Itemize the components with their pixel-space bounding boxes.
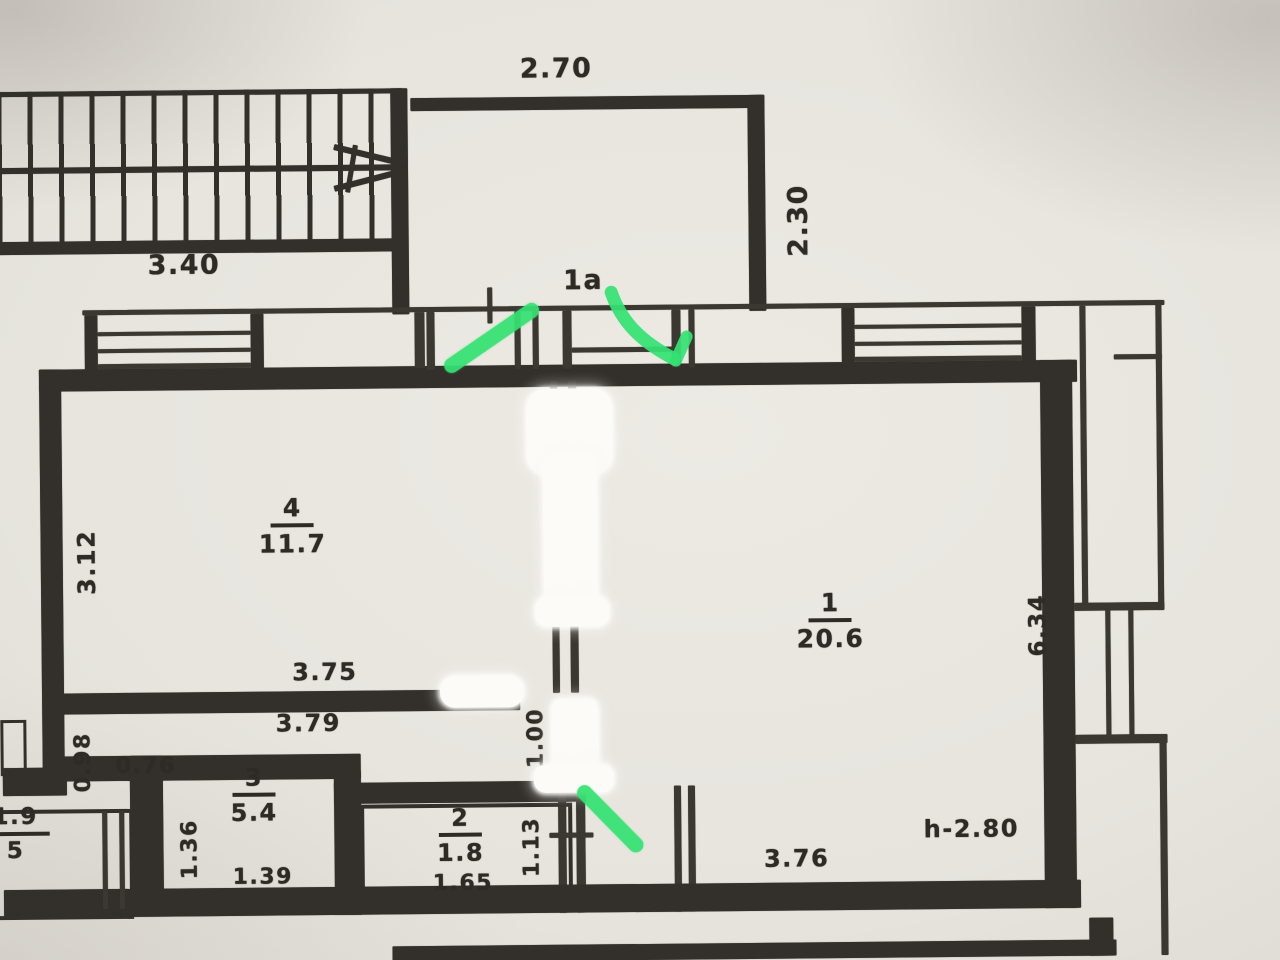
dim-balcony-top: 2.70 <box>520 55 593 83</box>
door-tick <box>487 287 492 323</box>
window-left-pane-line <box>98 348 251 353</box>
dim-room4-left: 3.12 <box>74 530 99 595</box>
porch-right-wall <box>747 95 766 311</box>
stairs-right-wall <box>390 88 409 314</box>
green-arrow-into-hall <box>593 279 714 380</box>
left-niche <box>0 720 27 776</box>
dim-corridor: 3.79 <box>276 711 341 736</box>
bay-window-top <box>1074 602 1164 611</box>
room2-label: 2 1.8 <box>437 806 485 865</box>
room2-area: 1.8 <box>437 837 484 865</box>
room3-area: 5.4 <box>231 796 278 824</box>
room3-top-wall <box>63 754 361 782</box>
porch-top-wall <box>410 95 762 111</box>
dim-room4-bottom: 3.75 <box>292 660 357 685</box>
window-right-jamb <box>1021 306 1036 364</box>
room3-label: 3 5.4 <box>230 765 278 824</box>
left-outer-wall <box>39 370 65 794</box>
partial-room-line <box>102 811 108 909</box>
partial-label-bottom: 5 <box>0 836 50 864</box>
floorplan-drawing: 3.40 2.70 2.30 1a 6.34 <box>0 0 1280 960</box>
dim-hall: 1.00 <box>525 708 548 768</box>
whiteout-patch <box>534 764 614 793</box>
dim-stairs: 3.40 <box>147 252 220 280</box>
partial-room-label: 1.9 5 <box>0 806 50 864</box>
wall-niche-line <box>414 312 425 368</box>
shaft-line <box>1114 354 1162 359</box>
dimension-tick <box>549 832 593 837</box>
dim-room2-right: 1.13 <box>521 817 544 877</box>
dim-balcony-side: 2.30 <box>785 184 813 257</box>
outer-right-line <box>1160 740 1169 955</box>
ceiling-height-label: h-2.80 <box>924 816 1019 841</box>
entry-wall-line <box>532 311 539 369</box>
bay-window-mullion <box>1128 608 1134 736</box>
window-left-pane-line <box>98 331 251 336</box>
room1-number: 1 <box>809 590 852 622</box>
dim-room1-bottom: 3.76 <box>764 846 829 871</box>
entry-wall-line <box>426 312 435 370</box>
partial-label-top: 1.9 <box>0 806 50 837</box>
room2-number: 2 <box>439 806 481 837</box>
room3-number: 3 <box>233 766 275 797</box>
lower-neighbor-wall <box>392 939 1116 960</box>
shaft-line <box>1079 306 1088 609</box>
room1-area: 20.6 <box>797 622 865 652</box>
room3-left-wall <box>130 756 164 911</box>
room1-label: 1 20.6 <box>796 590 864 652</box>
window-left-jamb <box>84 315 98 371</box>
dim-corridor-left: 0.98 <box>72 732 95 792</box>
window-left-jamb <box>250 314 264 370</box>
outer-right-line <box>1155 300 1164 610</box>
window-right-jamb <box>841 308 855 366</box>
room4-area: 11.7 <box>259 527 327 557</box>
entry-wall-line <box>562 311 572 369</box>
window-right-pane-line <box>855 340 1022 346</box>
bay-window-mullion <box>1105 608 1111 736</box>
dim-room3-bottom: 1.39 <box>233 866 293 889</box>
lower-neighbor-stub <box>1089 917 1113 955</box>
dim-corridor-jog: 0.76 <box>115 755 175 778</box>
whiteout-patch <box>543 452 599 613</box>
partial-room-line <box>119 811 125 909</box>
window-right-pane-line <box>855 323 1022 329</box>
room4-label: 4 11.7 <box>258 495 326 557</box>
room4-number: 4 <box>271 495 314 527</box>
bottom-wall <box>4 880 1081 918</box>
whiteout-patch <box>535 596 609 627</box>
dim-room1-right: 6.34 <box>1027 594 1051 657</box>
whiteout-patch <box>440 675 524 708</box>
bay-window-bottom <box>1075 734 1167 744</box>
dim-room3-left: 1.36 <box>179 819 202 879</box>
dim-room2-bottom: 1.65 <box>433 872 493 895</box>
floorplan-photo: 3.40 2.70 2.30 1a 6.34 <box>0 0 1280 960</box>
